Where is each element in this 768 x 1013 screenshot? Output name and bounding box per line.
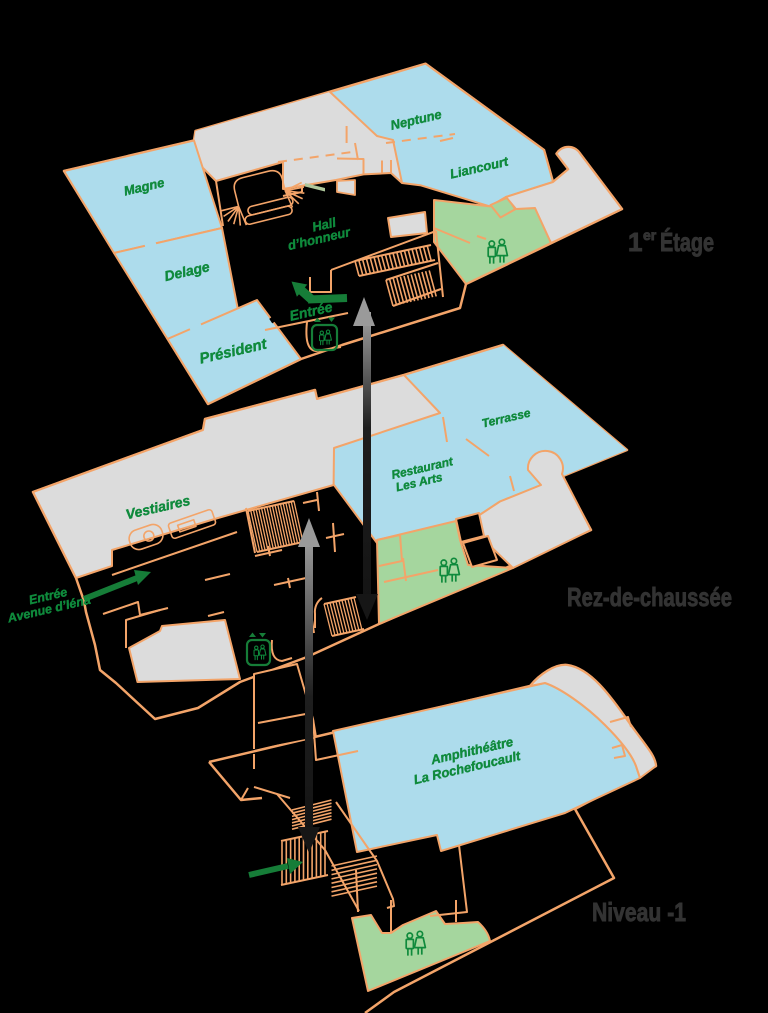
svg-text:1: 1 [628, 227, 642, 257]
svg-text:er: er [643, 227, 657, 243]
svg-text:Rez-de-chaussée: Rez-de-chaussée [567, 582, 732, 612]
svg-text:Étage: Étage [660, 227, 714, 257]
svg-text:Niveau -1: Niveau -1 [592, 897, 686, 927]
